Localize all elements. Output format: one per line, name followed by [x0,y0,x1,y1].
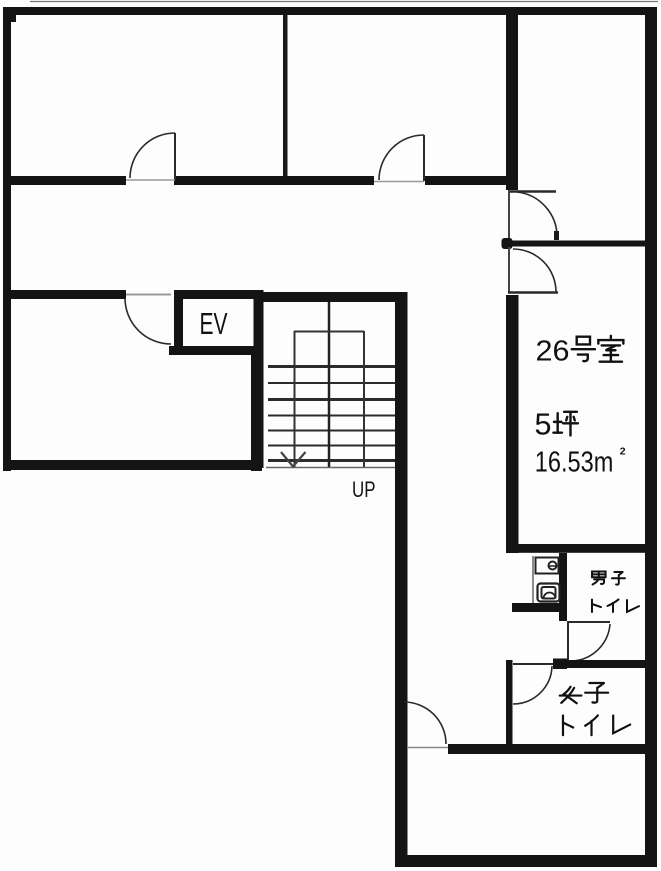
svg-text:5: 5 [535,408,552,442]
svg-text:UP: UP [352,477,376,502]
svg-text:26: 26 [536,336,570,368]
svg-text:16.53m: 16.53m [535,447,614,479]
svg-text:2: 2 [620,446,626,458]
svg-text:EV: EV [200,306,228,341]
